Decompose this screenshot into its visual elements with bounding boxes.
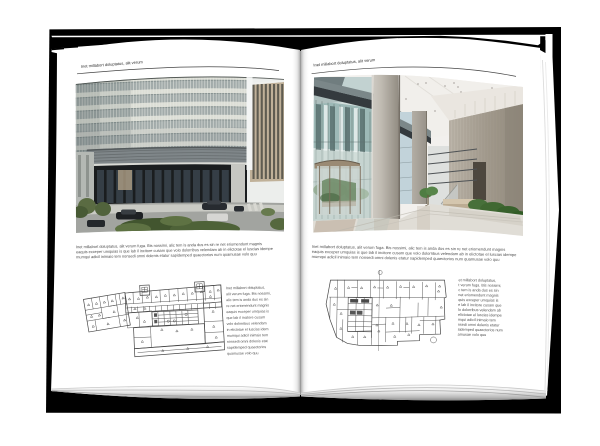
svg-text:Inet millabort doluptatus,: Inet millabort doluptatus, — [226, 286, 265, 291]
svg-text:quis exceper umquias is: quis exceper umquias is — [458, 298, 498, 303]
svg-text:in elictotae el luscias idem: in elictotae el luscias idem — [227, 327, 269, 332]
svg-text:quamusae volo quu: quamusae volo quu — [227, 351, 258, 356]
svg-text:mqui adicil inimaio tem: mqui adicil inimaio tem — [458, 318, 496, 323]
svg-text:alic tem is anda dus es sin: alic tem is anda dus es sin — [226, 297, 268, 302]
svg-text:eaquis exceper umquias is: eaquis exceper umquias is — [226, 309, 269, 314]
svg-text:mumqui adicil inimaio tem: mumqui adicil inimaio tem — [227, 333, 268, 338]
svg-text:nonsedi omni dolenis etat: nonsedi omni dolenis etat — [227, 339, 268, 344]
svg-text:nsedi omni dolenis etatur: nsedi omni dolenis etatur — [458, 323, 501, 328]
svg-text:net eriomendunt magnis: net eriomendunt magnis — [458, 293, 498, 298]
svg-text:re net eriomendunt magnis: re net eriomendunt magnis — [226, 303, 269, 308]
svg-text:sidemped quaectorios num: sidemped quaectorios num — [458, 328, 503, 333]
svg-text:t verum fuga. Bis nossimi,: t verum fuga. Bis nossimi, — [458, 283, 501, 288]
svg-text:sapidemped quaectorios: sapidemped quaectorios — [227, 345, 266, 350]
svg-text:lo dolorribus velendam ab: lo dolorribus velendam ab — [458, 308, 501, 313]
svg-text:c tem is anda dus es sin: c tem is anda dus es sin — [458, 288, 498, 293]
svg-text:amusae volo quu: amusae volo quu — [458, 333, 487, 337]
svg-text:volo dolorribus velendam: volo dolorribus velendam — [227, 321, 267, 326]
svg-text:alit verum fuga. Bis nossimi,: alit verum fuga. Bis nossimi, — [226, 291, 271, 296]
svg-text:elictotae el luscias idempe: elictotae el luscias idempe — [458, 313, 502, 318]
svg-text:que lab il incitore cusam: que lab il incitore cusam — [226, 315, 265, 320]
svg-text:et millabort doluptatus,: et millabort doluptatus, — [458, 278, 496, 283]
svg-text:e lab il incitore cusam que: e lab il incitore cusam que — [458, 303, 501, 308]
